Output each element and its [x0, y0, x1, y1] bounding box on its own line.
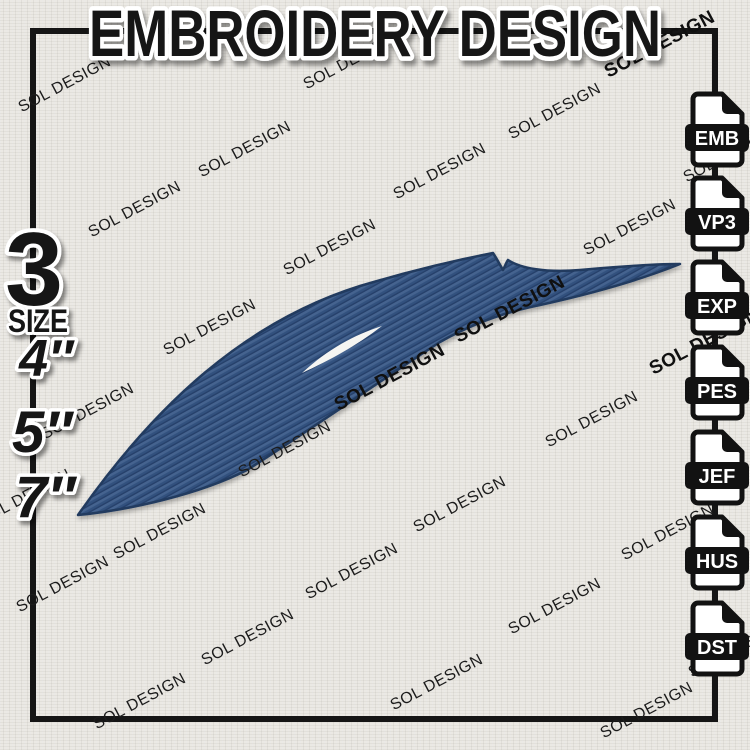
- file-pes-icon: PES: [684, 343, 750, 421]
- file-hus-icon: HUS: [684, 513, 750, 591]
- size-option-4in: 4″: [18, 330, 75, 388]
- doc-fold: [722, 262, 742, 282]
- file-emb-icon: EMB: [684, 90, 750, 168]
- doc-fold: [722, 178, 742, 198]
- file-hus-label: HUS: [696, 551, 738, 573]
- file-emb-label: EMB: [695, 128, 739, 150]
- doc-fold: [722, 347, 742, 367]
- file-dst-icon: DST: [684, 599, 750, 677]
- file-vp3-label: VP3: [698, 212, 736, 234]
- file-vp3-icon: VP3: [684, 174, 750, 252]
- file-exp-label: EXP: [697, 296, 737, 318]
- doc-fold: [722, 603, 742, 623]
- doc-fold: [722, 517, 742, 537]
- doc-fold: [722, 432, 742, 452]
- file-pes-label: PES: [697, 381, 737, 403]
- size-option-7in: 7″: [15, 465, 77, 530]
- size-option-5in: 5″: [12, 400, 74, 465]
- file-jef-label: JEF: [699, 466, 736, 488]
- file-exp-icon: EXP: [684, 258, 750, 336]
- size-panel: 3 SIZE 4″ 5″ 7″: [0, 0, 140, 560]
- page-title: EMBROIDERY DESIGN: [89, 0, 661, 70]
- embroidery-product-image: SOL DESIGNSOL DESIGNSOL DESIGNSOL DESIGN…: [0, 0, 750, 750]
- doc-fold: [722, 94, 742, 114]
- file-dst-label: DST: [697, 637, 737, 659]
- file-jef-icon: JEF: [684, 428, 750, 506]
